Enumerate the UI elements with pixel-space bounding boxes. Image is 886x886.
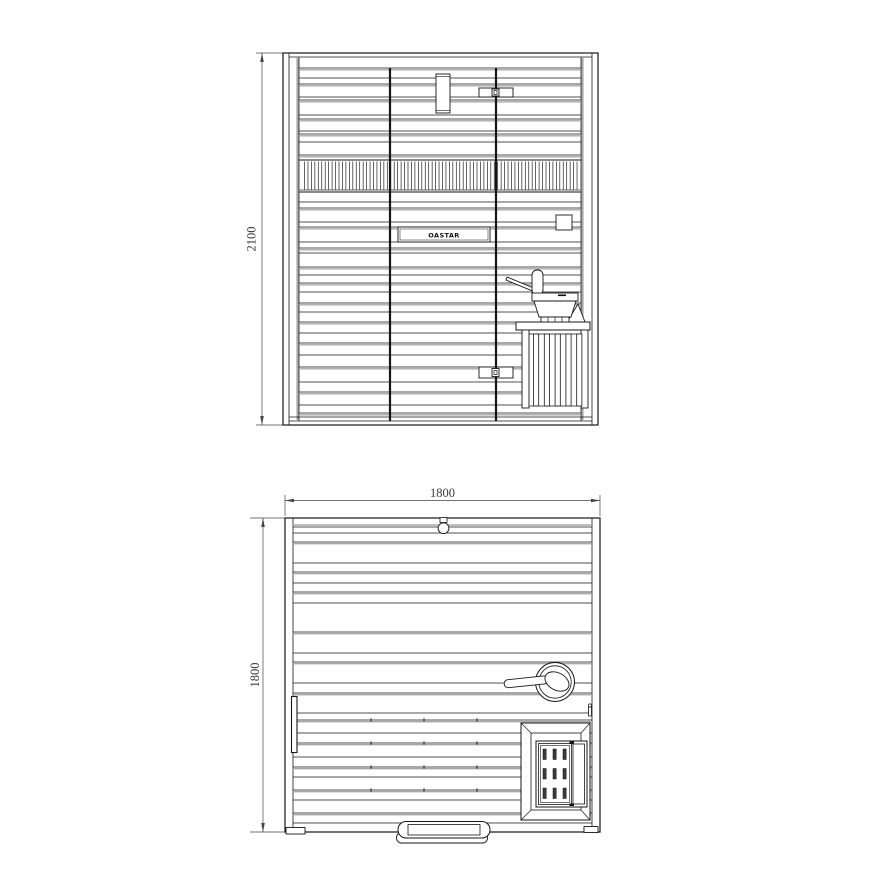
foot-right (584, 827, 598, 833)
heater-side-panel (573, 744, 585, 804)
bucket-body (534, 301, 576, 317)
drawing-canvas: 2100 (0, 0, 886, 886)
heater-vent-slot (553, 749, 556, 760)
control-box (556, 215, 572, 230)
dim-arrow-icon (260, 416, 264, 425)
brand-logo: OASTAR (428, 232, 459, 240)
guard-post-left (522, 330, 529, 408)
depth-dimension-label: 1800 (248, 663, 262, 688)
ladle-cup (532, 270, 543, 295)
wall-latch (588, 704, 591, 716)
wall-bracket (292, 697, 298, 753)
logo-plate: OASTAR (398, 227, 490, 242)
plan-door-knob (438, 518, 449, 534)
fence-slat (555, 334, 560, 406)
dim-arrow-icon (260, 53, 264, 62)
bucket-rim-mark (558, 295, 566, 297)
height-dimension-label: 2100 (245, 227, 259, 252)
bucket-rim (532, 293, 578, 301)
sauna-bucket-elevation (506, 270, 585, 322)
plan-depth-dimension: 1800 (248, 518, 285, 832)
heater-vent-slot (543, 788, 546, 799)
plan-view: 1800 1800 (240, 470, 640, 880)
guard-shelf (516, 322, 590, 330)
fence-slat (577, 334, 582, 406)
heater-vent-slot (553, 769, 556, 780)
fence-slat (534, 334, 539, 406)
elevation-height-dimension: 2100 (245, 53, 284, 425)
light-fixture (436, 74, 450, 113)
heater-vent-slot (563, 749, 566, 760)
plan-width-dimension: 1800 (285, 486, 600, 516)
width-dimension-label: 1800 (430, 486, 455, 500)
heater-vent-slot (543, 749, 546, 760)
backrest-slat-band (299, 160, 581, 192)
fence-slat (566, 334, 571, 406)
fence-slat (544, 334, 549, 406)
heater-vent-slot (563, 769, 566, 780)
elevation-view: 2100 (240, 40, 640, 440)
sauna-bucket-plan (504, 663, 575, 702)
heater-vent-slot (553, 788, 556, 799)
heater-vent-slot (543, 769, 546, 780)
door-handle-plan (397, 822, 491, 844)
foot-left (286, 828, 305, 835)
heater-vent-slot (563, 788, 566, 799)
